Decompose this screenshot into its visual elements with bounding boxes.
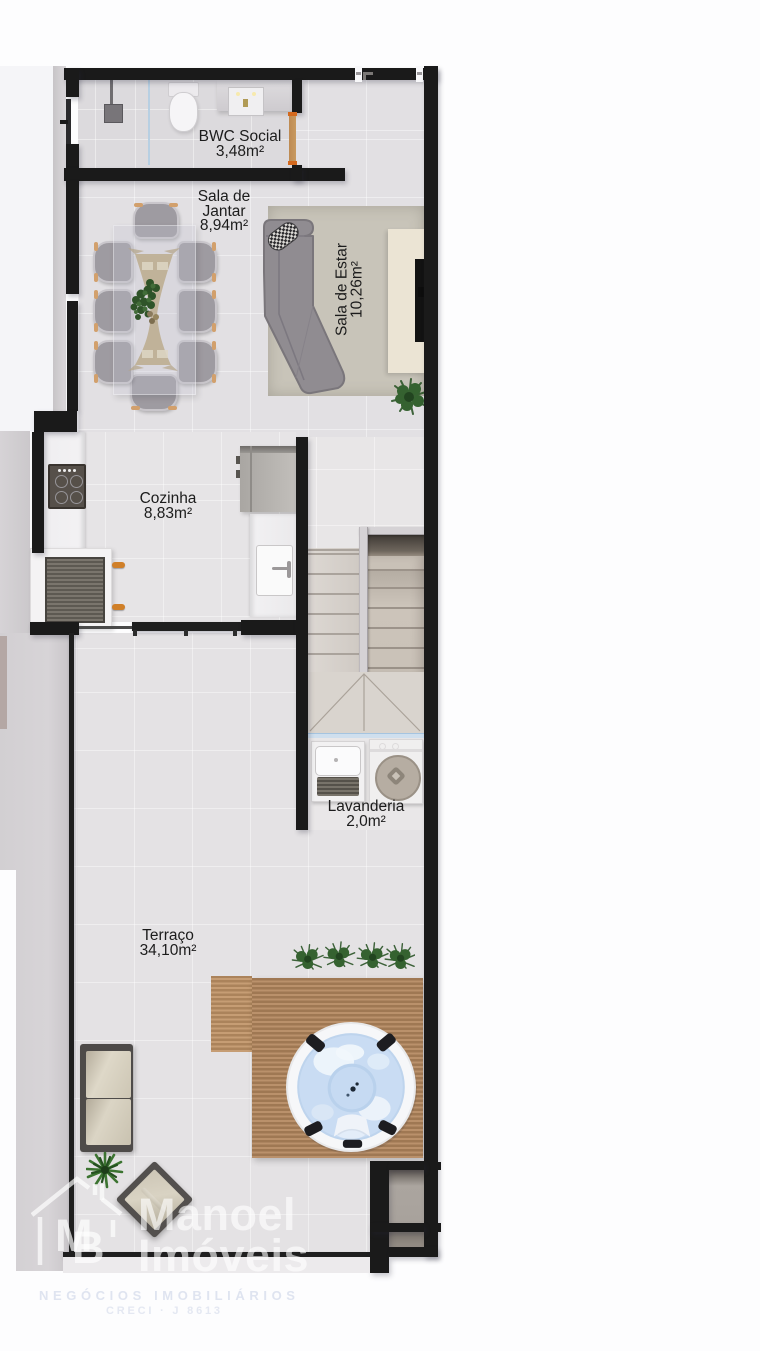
svg-text:B: B bbox=[72, 1222, 105, 1270]
